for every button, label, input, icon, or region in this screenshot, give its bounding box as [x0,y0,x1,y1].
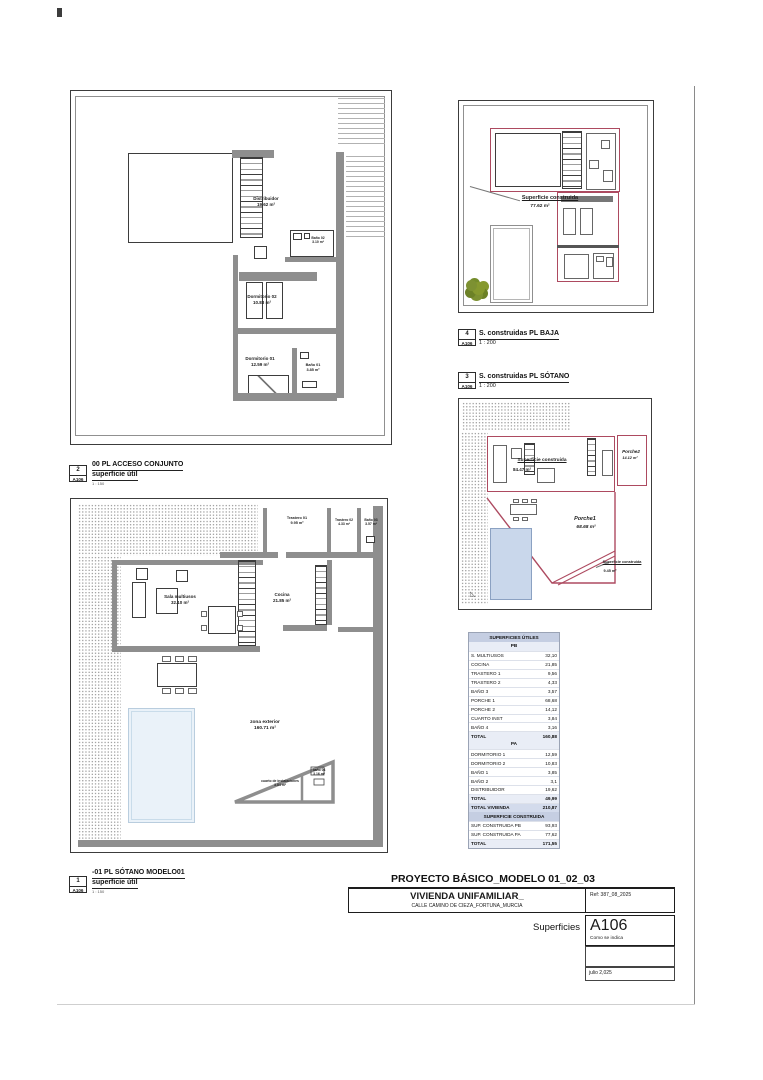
constructed-total-row: TOTAL 171,55 [469,839,559,848]
page-corner-mark [57,8,62,17]
room-name: Dormitorio 02 [247,294,276,300]
chair-icon [201,611,207,617]
room-label-distribuidor: Distribuidor 19.62 m² [253,196,279,207]
sheet-date: julio 2,025 [589,970,612,976]
row-value: 3,16 [548,725,557,730]
table-row: PORCHE 214,12 [469,705,559,714]
wardrobe-icon [239,272,317,281]
wall-segment [233,393,337,401]
areas-table: SUPERFICIES ÚTILES PB S. MULTIUSOS32,10C… [468,632,560,849]
row-label: BAÑO 2 [471,779,488,784]
wall-segment [220,552,278,558]
view-title: 00 PL ACCESO CONJUNTO [92,461,183,471]
title-block-empty-cell [585,946,675,967]
terrain-stipple [78,504,258,556]
fixture-icon [304,233,310,239]
room-area: 160.71 m² [250,726,280,732]
dining-table-icon [208,606,236,634]
row-label: SUP. CONSTRUIDA PB [471,823,521,828]
table-constructed-title: SUPERFICIE CONSTRUIDA [469,812,559,821]
terrace-hatch [338,98,385,144]
row-value: 210,87 [543,805,557,810]
table-row: S. MULTIUSOS32,10 [469,651,559,660]
room-area: 21.85 m² [273,598,291,604]
wall-segment [286,552,373,558]
chair-icon [522,517,528,521]
fixture-icon [302,381,317,388]
total-vivienda-row: TOTAL VIVIENDA 210,87 [469,803,559,812]
view-sheet-code: A106 [70,887,86,895]
constructed-area2-label: Superficie construida [603,560,642,565]
view-scale: 1 : 150 [92,481,104,486]
wall-segment [338,627,373,632]
view-number: 2 [70,466,86,476]
row-label: DISTRIBUIDOR [471,787,505,792]
row-value: 3,84 [548,716,557,721]
instalaciones-room-outline [223,750,338,806]
table-row: DORMITORIO 112,59 [469,749,559,758]
row-value: 19,62 [545,787,557,792]
wall-segment [233,328,337,334]
terrace-hatch [346,156,385,238]
wall-segment [112,646,260,652]
pool [490,528,532,600]
row-label: PORCHE 2 [471,707,495,712]
room-label-dormitorio02: Dormitorio 02 10.83 m² [247,294,276,305]
view-number: 3 [459,373,475,383]
room-name: Distribuidor [253,196,279,202]
room-label-bano03: Baño 03 3.57 m² [364,518,377,527]
porche1-area: 68.68 m² [576,525,595,531]
row-value: 4,33 [548,680,557,685]
table-row: BAÑO 33,57 [469,687,559,696]
wall-segment [112,560,117,652]
table-row: SUP. CONSTRUIDA PB93,93 [469,821,559,830]
wall-segment [233,255,238,395]
wall-segment [283,625,327,631]
table-icon [254,246,267,259]
chair-icon [531,499,537,503]
room-label-trastero01: Trastero 01 9.95 m² [287,516,307,526]
wall-segment [357,508,361,554]
stair-icon [562,131,582,189]
view-ref-box: 1 A106 [69,876,87,893]
view-scale: 1 : 200 [479,340,496,347]
chair-icon [513,499,519,503]
pb-rows: S. MULTIUSOS32,10COCINA21,85TRASTERO 19,… [469,651,559,731]
page-border-right [694,86,695,1004]
row-label: CUARTO INST [471,716,503,721]
row-value: 3,85 [548,770,557,775]
room-area: 3.84 m² [261,783,299,787]
chair-icon [513,517,519,521]
wall-segment [557,245,619,248]
room-label-zona-exterior: zona exterior 160.71 m² [250,720,280,732]
constructed-area-label: Superficie construida [522,195,578,202]
kitchen-counter-icon [315,565,327,625]
room-name: Cocina [273,592,291,598]
view-ref-box: 4 A106 [458,329,476,346]
room-label-dormitorio01: Dormitorio 01 12.59 m² [245,356,274,367]
row-value: 68,68 [545,698,557,703]
view-title: S. construidas PL BAJA [479,330,559,340]
constructed-area-label: Superficie construida [517,458,566,464]
row-value: 14,12 [545,707,557,712]
main-room-walls [495,133,561,187]
room-area: 9.95 m² [287,521,307,526]
room-label-bano04: baño 04 3.16 m² [313,768,326,777]
fixture-icon [589,160,599,169]
chair-icon [162,656,171,662]
row-label: BAÑO 3 [471,689,488,694]
room-label-cocina: Cocina 21.85 m² [273,592,291,603]
bed-icon [580,208,593,235]
view-ref-box: 3 A106 [458,372,476,389]
fixture-icon [601,140,610,149]
project-title: PROYECTO BÁSICO_MODELO 01_02_03 [348,873,638,885]
fixture-icon [596,256,604,262]
row-label: S. MULTIUSOS [471,653,504,658]
row-label: PORCHE 1 [471,698,495,703]
pa-rows: DORMITORIO 112,59DORMITORIO 210,83BAÑO 1… [469,749,559,794]
row-label: TRASTERO 1 [471,671,500,676]
plan-acceso-conjunto: Distribuidor 19.62 m² Baño 02 3.10 m² Do… [70,90,392,445]
row-value: 10,83 [545,761,557,766]
retaining-wall [78,840,383,847]
plan-sotano-construida: ◺ Superficie construida 84.47 m² Porche2… [458,398,652,610]
row-value: 9,56 [548,671,557,676]
sofa-icon [132,582,146,618]
building-title: VIVIENDA UNIFAMILIAR_ [349,891,585,902]
constructed-area-value: 84.47 m² [513,467,531,473]
view-ref-box: 2 A106 [69,465,87,482]
row-label: DORMITORIO 2 [471,761,505,766]
table-row: PORCHE 168,68 [469,696,559,705]
porche1-outline [458,398,652,610]
drawing-sheet: Distribuidor 19.62 m² Baño 02 3.10 m² Do… [0,0,763,1080]
fixture-icon [603,170,613,182]
room-area: 10.83 m² [247,300,276,306]
view-number: 4 [459,330,475,340]
plan-sotano-util: Trastero 01 9.95 m² Trastero 02 4.33 m² … [70,498,388,853]
row-label: BAÑO 4 [471,725,488,730]
project-address: CALLE CAMINO DE CIEZA_FORTUNA_MURCIA [349,903,585,910]
bed-icon [563,208,576,235]
table-row: BAÑO 43,16 [469,722,559,731]
row-value: 3,57 [548,689,557,694]
chair-icon [522,499,528,503]
fixture-icon [300,352,309,359]
room-name: Dormitorio 01 [245,356,274,362]
table-row: TRASTERO 19,56 [469,669,559,678]
porche1-label: Porche1 [574,516,596,523]
retaining-wall [373,506,383,844]
room-label-bano01: Baño 01 3.85 m² [306,363,321,373]
room-label-trastero02: Trastero 02 4.33 m² [335,518,353,527]
chair-icon [201,625,207,631]
table-section-pa: PA [469,740,559,749]
chair-icon [188,688,197,694]
pool [128,708,195,823]
row-label: TOTAL [471,734,486,739]
constructed-area2-value: 9.45 m² [603,569,616,574]
row-value: 32,10 [545,653,557,658]
row-label: DORMITORIO 1 [471,752,505,757]
chair-icon [237,611,243,617]
row-label: BAÑO 1 [471,770,488,775]
room-label-sala: Sala multiusos 32.10 m² [164,594,196,605]
chair-icon [175,688,184,694]
table-section-pb: PB [469,642,559,651]
view-subtitle: superficie útil [92,471,138,481]
sheet-date-box: julio 2,025 [585,967,675,981]
room-area: 4.33 m² [335,522,353,526]
view-number: 1 [70,877,86,887]
row-value: 21,85 [545,662,557,667]
chair-icon [237,625,243,631]
table-row: DORMITORIO 210,83 [469,758,559,767]
pb-total-row: TOTAL 160,88 [469,731,559,740]
wall-segment [263,508,267,554]
view-sheet-code: A106 [70,476,86,484]
furniture-icon [136,568,148,580]
row-value: 160,88 [543,734,557,739]
sheet-number-box: A106 Como se indica [585,915,675,946]
view-subtitle: superficie útil [92,879,138,889]
table-row: BAÑO 23,1 [469,776,559,785]
north-mark: ◺ [470,590,475,598]
table-row: SUP. CONSTRUIDA PA77,62 [469,830,559,839]
building-title-cell: VIVIENDA UNIFAMILIAR_ CALLE CAMINO DE CI… [349,889,586,912]
table-row: DISTRIBUIDOR19,62 [469,785,559,794]
fixture-icon [606,257,613,267]
table-row: BAÑO 13,85 [469,767,559,776]
chair-icon [188,656,197,662]
page-border-bottom [57,1004,695,1005]
wall-segment [336,152,344,398]
outdoor-table-icon [157,663,197,687]
row-label: TOTAL VIVIENDA [471,805,510,810]
table-row: COCINA21,85 [469,660,559,669]
view-scale: 1 : 200 [479,383,496,390]
room-area: 32.10 m² [164,600,196,606]
row-value: 49,99 [545,796,557,801]
constructed-rows: SUP. CONSTRUIDA PB93,93SUP. CONSTRUIDA P… [469,821,559,839]
row-value: 3,1 [550,779,557,784]
fixture-icon [366,536,375,543]
porche2-area: 14.12 m² [622,456,637,461]
view-scale: 1 : 150 [92,889,104,894]
sheet-number: A106 [590,917,670,935]
table-row: TRASTERO 24,33 [469,678,559,687]
room-label-bano02: Baño 02 3.10 m² [311,236,324,245]
title-block-main: VIVIENDA UNIFAMILIAR_ CALLE CAMINO DE CI… [348,887,675,913]
fixture-icon [293,233,302,240]
bed-icon [564,254,589,279]
table-row: CUARTO INST3,84 [469,714,559,723]
furniture-icon [176,570,188,582]
double-height-void [128,153,233,243]
wall-segment [327,560,332,625]
row-value: 93,93 [545,823,557,828]
sheet-name: Superficies [430,922,580,933]
row-value: 12,59 [545,752,557,757]
view-sheet-code: A106 [459,340,475,348]
view-sheet-code: A106 [459,383,475,391]
room-area: 19.62 m² [253,202,279,208]
room-area: 3.57 m² [364,522,377,526]
pa-total-row: TOTAL 49,99 [469,794,559,803]
wall-segment [327,508,331,554]
chair-icon [162,688,171,694]
pool-edge [131,711,192,820]
room-name: Sala multiusos [164,594,196,600]
view-title: -01 PL SÓTANO MODELO01 [92,869,185,879]
row-value: 171,55 [543,841,557,846]
view-title: S. construidas PL SÓTANO [479,373,569,383]
room-area: 12.59 m² [245,362,274,368]
wall-segment [292,348,297,395]
pool-edge [493,228,530,300]
row-label: TOTAL [471,841,486,846]
sheet-reference: Ref: 387_08_2025 [586,889,674,912]
outdoor-table-icon [510,504,537,515]
room-area: 3.10 m² [311,240,324,244]
room-label-cuarto-inst: cuarto de instalaciones 3.84 m² [261,779,299,788]
row-value: 77,62 [545,832,557,837]
pool-outline [490,225,533,303]
porche2-label: Porche2 [622,449,640,455]
row-label: COCINA [471,662,489,667]
chair-icon [175,656,184,662]
room-area: 3.16 m² [313,772,326,776]
table-title: SUPERFICIES ÚTILES [469,633,559,642]
wall-segment [285,257,337,262]
constructed-area-value: 77.62 m² [530,204,549,210]
room-area: 3.85 m² [306,368,321,373]
scale-note: Como se indica [590,935,670,942]
plan-baja-construida: Superficie construida 77.62 m² [458,100,654,313]
tree-icon [466,280,477,291]
row-label: SUP. CONSTRUIDA PA [471,832,521,837]
row-label: TRASTERO 2 [471,680,500,685]
row-label: TOTAL [471,796,486,801]
stair-icon [238,560,256,646]
